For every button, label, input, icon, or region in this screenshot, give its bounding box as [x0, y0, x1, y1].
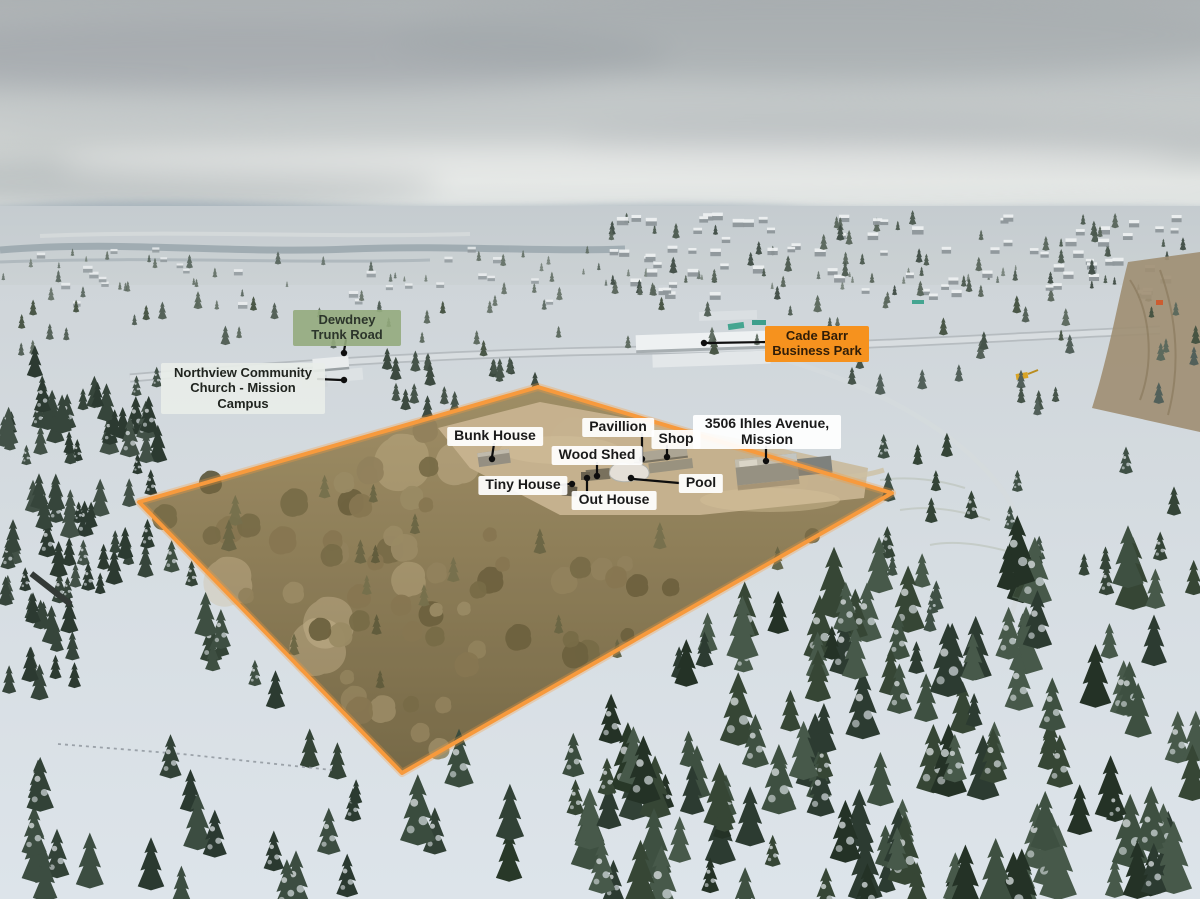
house [712, 213, 723, 221]
house [1046, 285, 1054, 291]
house [367, 271, 376, 278]
house [942, 247, 951, 254]
house [668, 246, 678, 253]
house [83, 266, 93, 273]
aerial-photo-scene [0, 0, 1200, 899]
house [493, 257, 502, 263]
house [646, 254, 656, 261]
house [759, 217, 768, 223]
house [929, 294, 938, 300]
house [468, 247, 476, 253]
house [61, 283, 70, 289]
house [632, 215, 642, 222]
house [688, 248, 696, 254]
house [1073, 250, 1084, 258]
house [101, 282, 108, 287]
house [1030, 248, 1039, 254]
house [990, 247, 999, 254]
house [99, 277, 107, 282]
house [1003, 215, 1013, 222]
house [787, 247, 795, 253]
house [531, 278, 539, 284]
house [1063, 271, 1073, 278]
house [1053, 283, 1062, 290]
house [1076, 229, 1085, 235]
house [722, 237, 731, 243]
house [880, 250, 888, 255]
house [653, 262, 661, 268]
house [688, 269, 699, 277]
house [767, 228, 775, 234]
house [37, 253, 45, 259]
house [436, 282, 444, 288]
house [948, 277, 958, 284]
house [238, 302, 247, 309]
house [1129, 220, 1139, 227]
house [710, 249, 721, 257]
house [647, 269, 658, 277]
house [478, 273, 487, 279]
house [386, 285, 393, 290]
house [912, 226, 924, 234]
house [941, 284, 949, 290]
house [669, 282, 677, 288]
house [710, 292, 721, 300]
house [160, 257, 167, 262]
house [487, 276, 495, 281]
house [610, 249, 619, 255]
house [880, 219, 888, 225]
house [444, 257, 452, 263]
house [906, 273, 914, 279]
house [646, 218, 657, 226]
house [753, 265, 764, 273]
house [1054, 264, 1065, 272]
house [720, 263, 729, 269]
house [1112, 258, 1123, 266]
house [743, 219, 754, 227]
house [1171, 228, 1179, 234]
house [1040, 252, 1048, 258]
house [663, 288, 671, 294]
aerial-property-photo: Bunk House Pavillion Shop Wood Shed Tiny… [0, 0, 1200, 899]
house [1172, 215, 1182, 222]
house [1065, 238, 1076, 246]
house [733, 219, 745, 227]
house [405, 283, 413, 288]
house [693, 228, 702, 234]
house [982, 271, 992, 278]
house [619, 250, 629, 257]
house [868, 232, 879, 240]
house [1089, 274, 1099, 281]
house [234, 269, 243, 275]
house [111, 249, 118, 254]
house [862, 288, 870, 294]
house [1004, 240, 1013, 246]
house [349, 291, 358, 298]
house [89, 272, 98, 279]
house [546, 300, 553, 305]
house [177, 263, 184, 268]
house [952, 290, 962, 297]
house [1098, 239, 1109, 247]
house [1155, 226, 1164, 232]
house [183, 269, 190, 274]
house [152, 247, 159, 252]
house [767, 248, 777, 255]
house [1123, 233, 1133, 240]
house [699, 216, 708, 222]
house [828, 268, 838, 275]
house [617, 217, 629, 225]
